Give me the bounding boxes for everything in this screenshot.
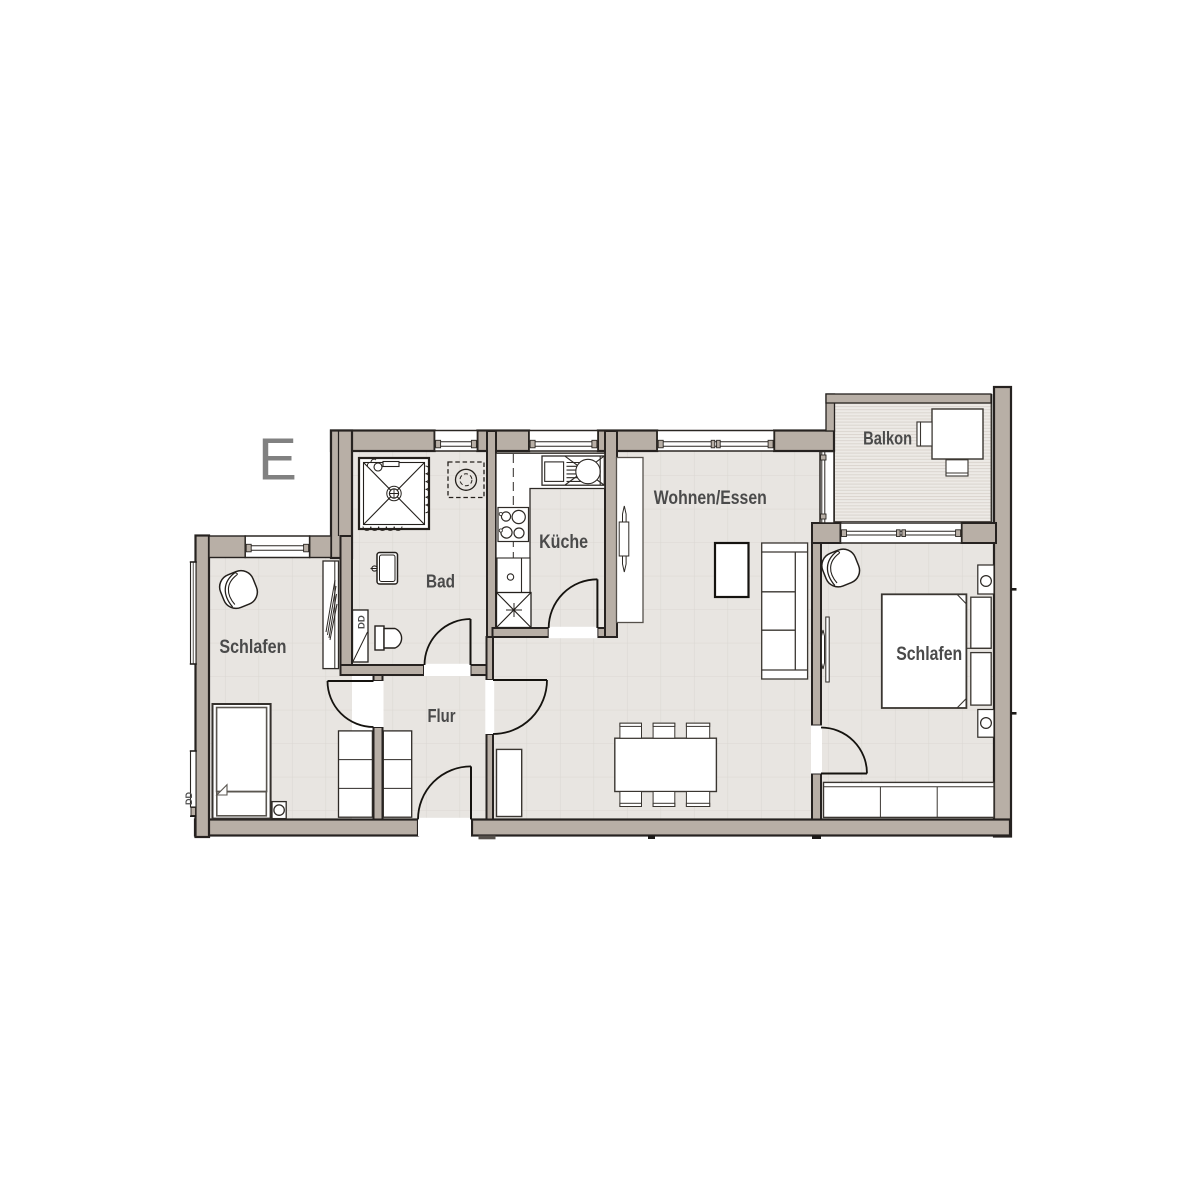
- svg-text:Schlafen: Schlafen: [896, 644, 962, 665]
- svg-text:Balkon: Balkon: [863, 429, 912, 449]
- svg-text:Wohnen/Essen: Wohnen/Essen: [654, 488, 767, 509]
- svg-text:Schlafen: Schlafen: [219, 637, 286, 658]
- svg-text:E: E: [258, 427, 297, 493]
- svg-text:Bad: Bad: [426, 572, 455, 592]
- svg-text:Küche: Küche: [539, 532, 588, 553]
- svg-text:Flur: Flur: [428, 706, 456, 726]
- svg-text:DD: DD: [184, 792, 194, 805]
- svg-text:DD: DD: [357, 615, 368, 629]
